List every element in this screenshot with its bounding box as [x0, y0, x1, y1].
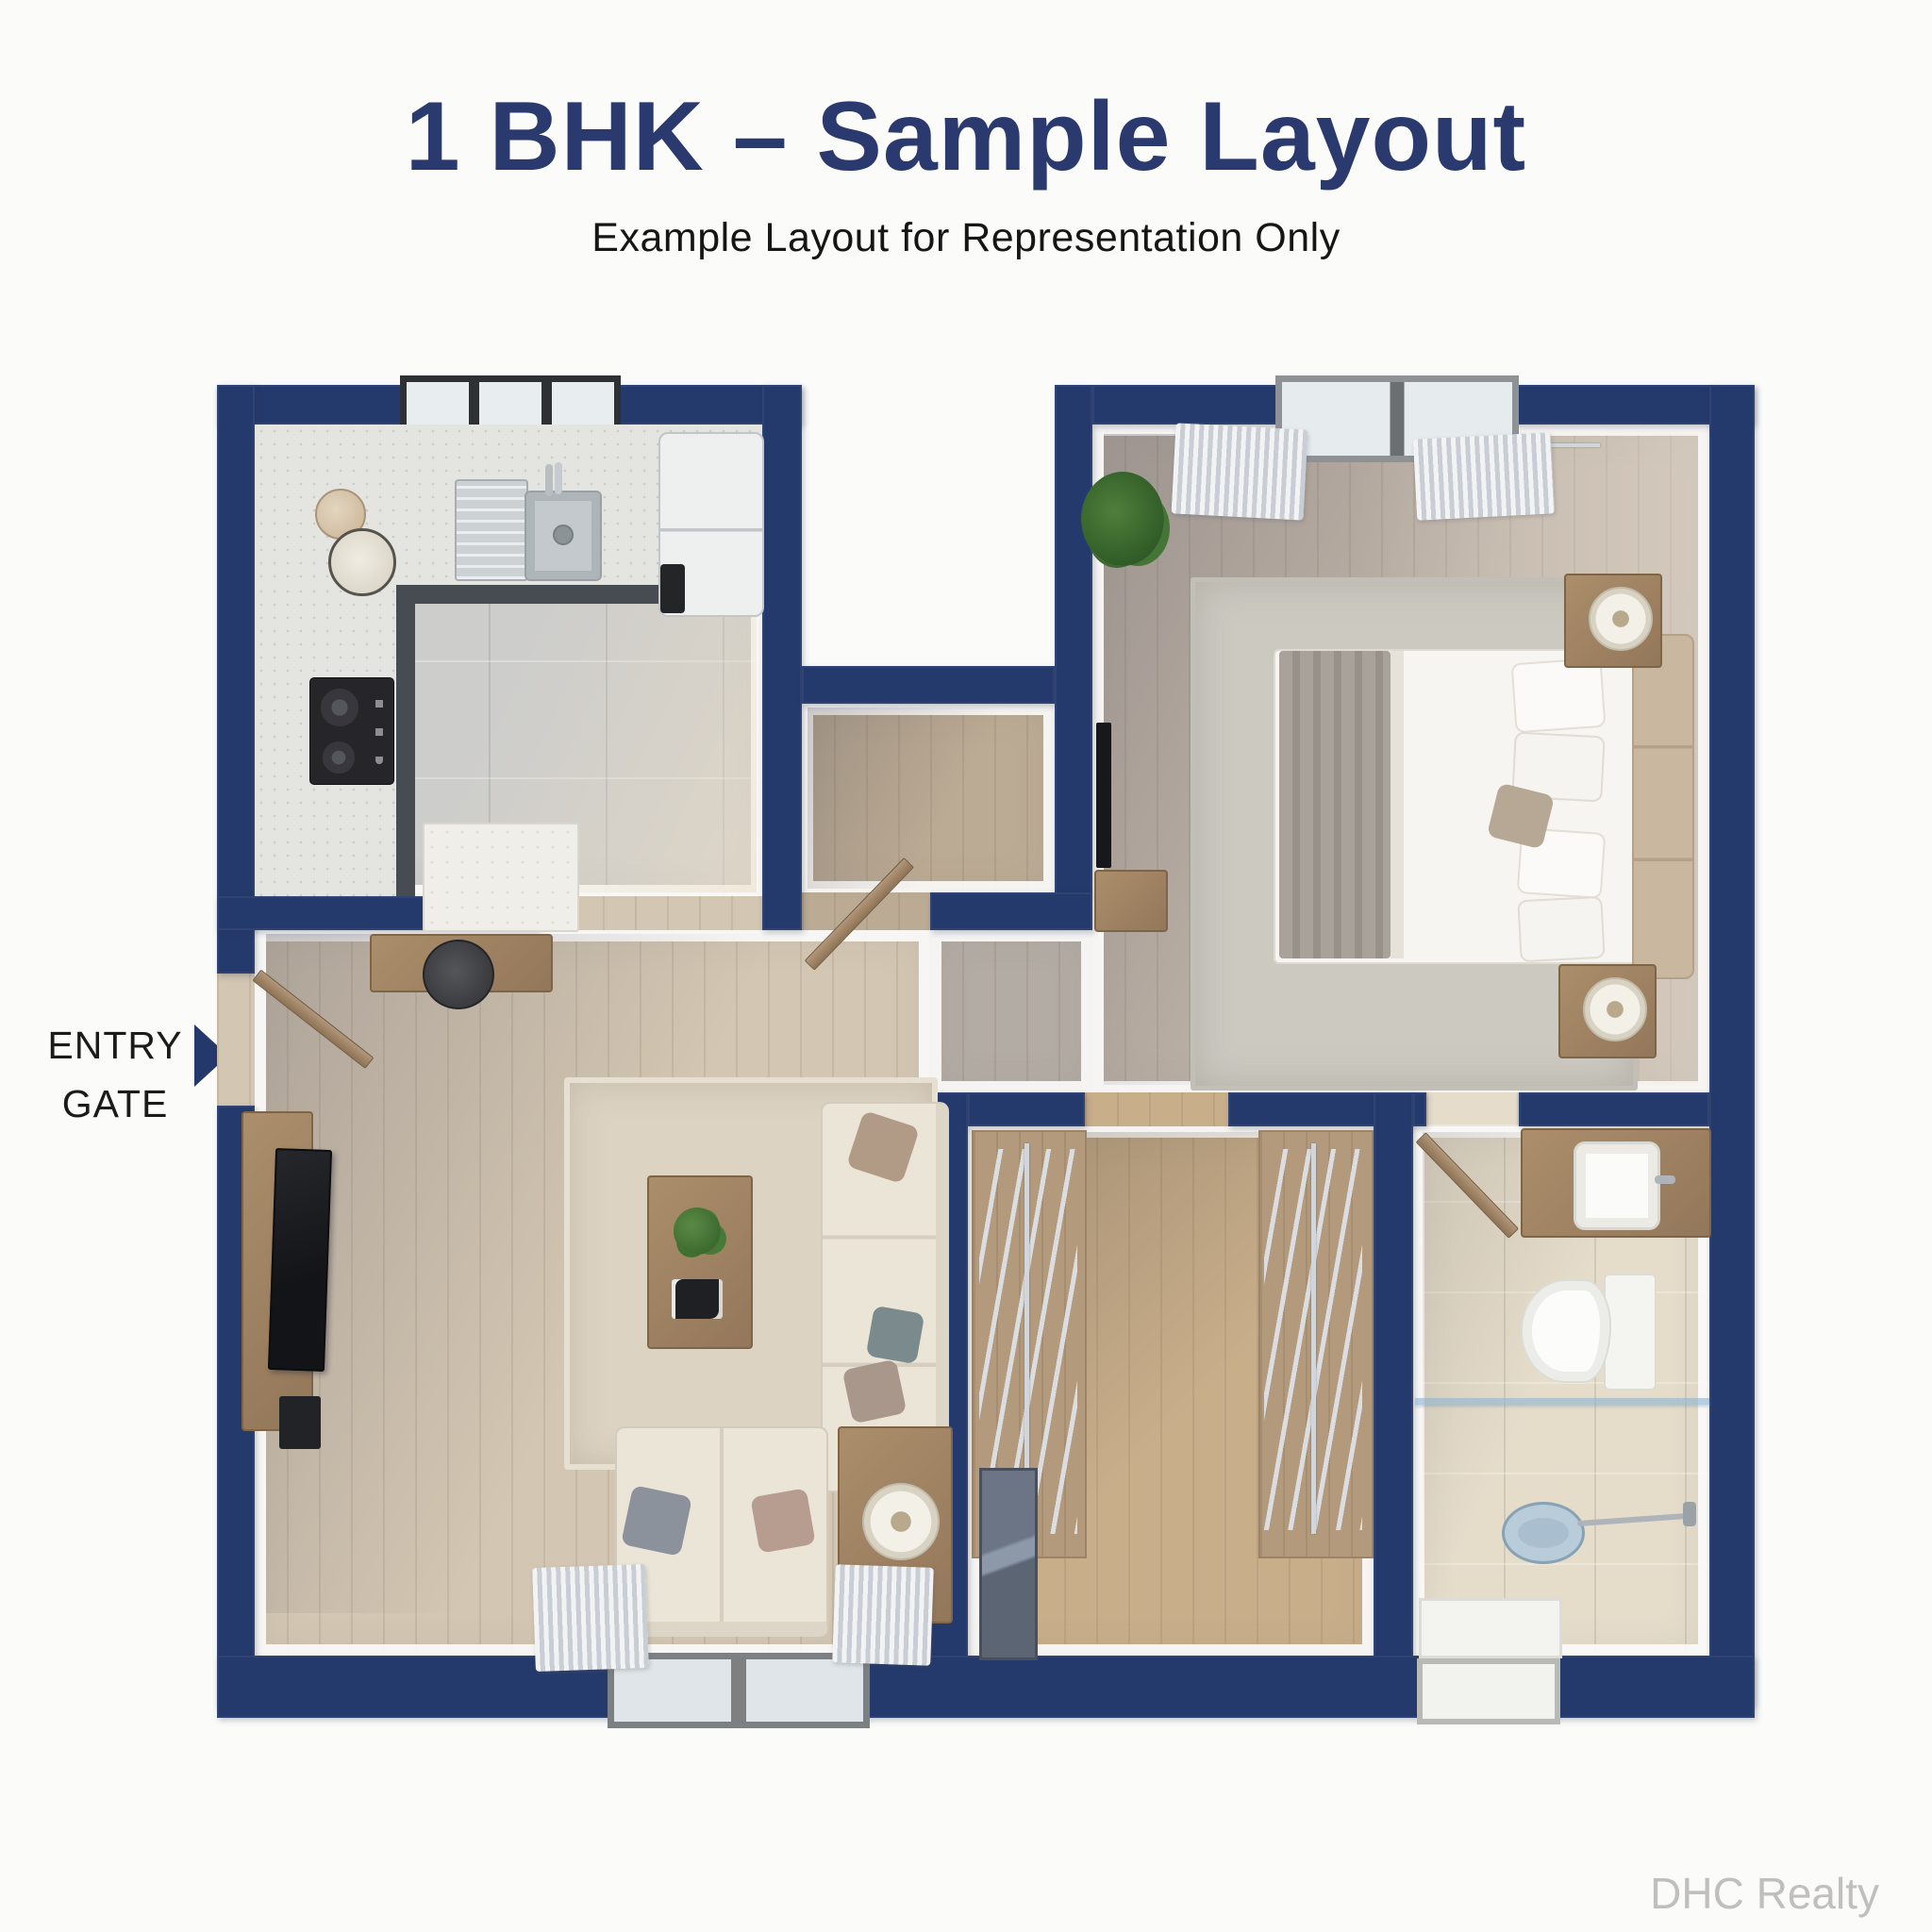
toilet-tank: [1604, 1274, 1657, 1391]
shower-handle: [1683, 1502, 1696, 1526]
bathroom-faucet-icon: [1655, 1175, 1675, 1184]
kitchen-hob-burner-2: [323, 741, 355, 774]
foyer-alcove-floor: [802, 704, 1055, 892]
desk-chair: [423, 940, 494, 1009]
floor-plan: [0, 0, 1932, 1932]
bed-pillow-4: [1517, 896, 1605, 963]
entry-threshold: [217, 974, 255, 1106]
bed-pillow-1: [1511, 658, 1607, 734]
bedroom-tv-console: [1094, 870, 1168, 932]
tv-screen: [268, 1148, 332, 1372]
page: 1 BHK – Sample Layout Example Layout for…: [0, 0, 1932, 1932]
bathroom-doorway-threshold: [1426, 1092, 1519, 1126]
wall-wardrobe-right: [1374, 1092, 1413, 1706]
bed-duvet-fold: [1391, 651, 1404, 958]
wardrobe-entrance-threshold: [1085, 1092, 1228, 1126]
loveseat-pillow-blush: [750, 1488, 816, 1554]
wall-alcove-top: [802, 666, 1055, 704]
kitchen-hob-burner-1: [321, 689, 358, 726]
bed-throw-blanket: [1279, 651, 1391, 958]
bathroom-window: [1417, 1658, 1560, 1724]
living-curtain-right: [832, 1564, 934, 1666]
bathroom-basin: [1574, 1141, 1660, 1230]
shower-tray: [1419, 1598, 1562, 1658]
wardrobe-mirror: [979, 1468, 1038, 1660]
toilet-bowl: [1521, 1279, 1611, 1383]
wall-kitchen-left: [217, 385, 255, 974]
wall-alcove-bottom: [930, 892, 1092, 930]
bedroom-tv: [1096, 723, 1111, 868]
coffee-table: [647, 1175, 753, 1349]
sofa-right-pillow-taupe: [842, 1359, 908, 1424]
sofa-right-pillow-teal: [866, 1306, 925, 1365]
bedroom-curtain-left: [1172, 423, 1308, 520]
tv-console-accessories: [279, 1396, 321, 1449]
shower-drain-plate: [1502, 1502, 1585, 1564]
bedroom-plant: [1081, 472, 1164, 566]
kitchen-sink-drain-dot: [553, 525, 574, 545]
wall-wardrobe-bay-left-top: [968, 1092, 1085, 1126]
kitchen-coffee-maker: [660, 564, 685, 613]
kitchen-sink-drainboard: [455, 479, 528, 581]
shower-glass-partition: [1415, 1398, 1709, 1405]
loveseat-pillow-gray: [621, 1485, 692, 1557]
coffee-table-plant: [674, 1207, 721, 1255]
kitchen-peninsula-counter: [423, 823, 579, 932]
bed-headboard: [1632, 634, 1694, 979]
wall-bedroom-left: [1055, 385, 1092, 894]
wall-bathroom-top: [1519, 1092, 1709, 1126]
nightstand-bottom-lamp: [1583, 977, 1647, 1041]
living-curtain-left: [532, 1564, 649, 1672]
coffee-table-tray: [672, 1279, 723, 1319]
side-table-lamp: [862, 1483, 940, 1560]
kitchen-hob-knobs: [375, 694, 383, 764]
wall-kitchen-right: [762, 385, 802, 930]
wall-bathroom-top-jamb: [1413, 1092, 1426, 1126]
nightstand-top-lamp: [1589, 587, 1653, 651]
kitchen-faucet-icon: [545, 464, 553, 496]
wardrobe-rail-right: [1311, 1143, 1316, 1534]
kitchen-jar-large: [328, 528, 396, 596]
wall-right: [1709, 385, 1755, 1706]
corridor-floor: [930, 930, 1092, 1092]
bedroom-curtain-right: [1413, 432, 1555, 521]
